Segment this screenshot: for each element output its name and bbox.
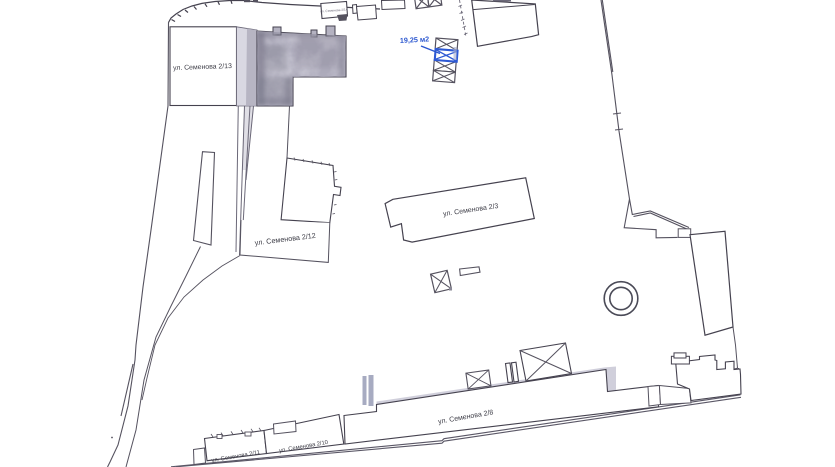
svg-text:19,25 м2: 19,25 м2 bbox=[400, 34, 430, 45]
